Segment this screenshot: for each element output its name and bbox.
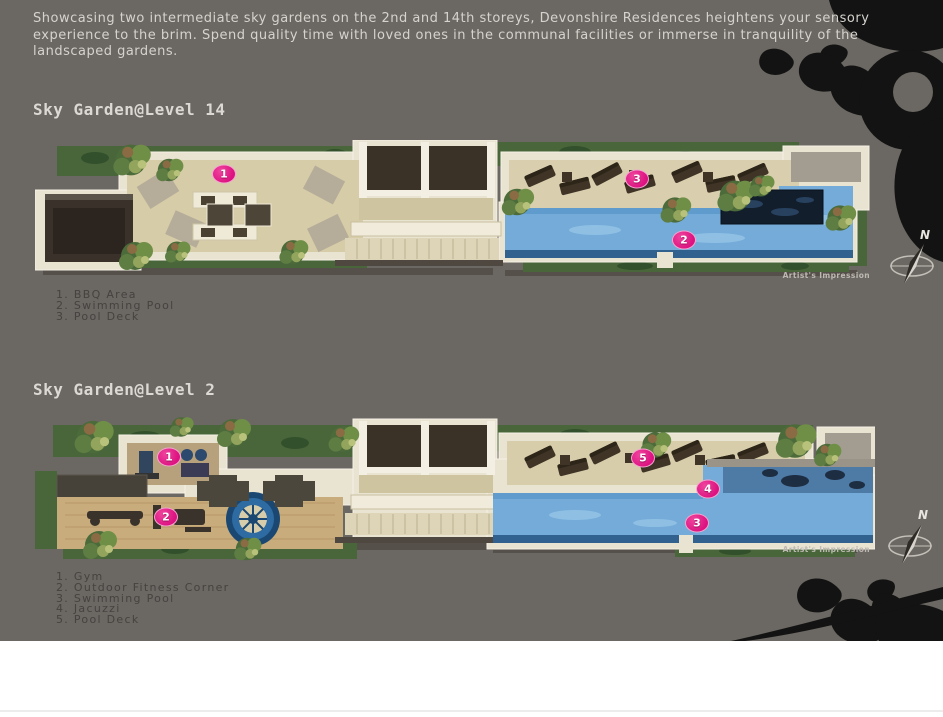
building-core — [335, 142, 503, 266]
roof-terrace — [791, 152, 861, 182]
artists-impression-level2: Artist's Impression — [760, 545, 870, 554]
level2-legend: 1. Gym 2. Outdoor Fitness Corner 3. Swim… — [56, 572, 230, 626]
compass-level14: N — [888, 228, 936, 290]
water-feature-left — [45, 194, 133, 262]
level2-floor-plan — [35, 415, 875, 561]
page-bottom-edge — [0, 710, 943, 712]
brochure-page: Showcasing two intermediate sky gardens … — [0, 0, 943, 717]
jacuzzi — [707, 459, 875, 493]
marker-level2-4: 4 — [696, 480, 720, 499]
legend-item: 3. Pool Deck — [56, 312, 175, 323]
marker-level14-3: 3 — [625, 170, 649, 189]
compass-north-label: N — [918, 508, 928, 522]
compass-level2: N — [886, 508, 934, 570]
stairs — [345, 513, 499, 535]
marker-level2-5: 5 — [631, 449, 655, 468]
marker-level14-2: 2 — [672, 231, 696, 250]
intro-paragraph: Showcasing two intermediate sky gardens … — [33, 11, 913, 61]
marker-level2-1: 1 — [157, 448, 181, 467]
level2-title: Sky Garden@Level 2 — [33, 380, 215, 399]
gray-background: Showcasing two intermediate sky gardens … — [0, 0, 943, 641]
legend-item: 5. Pool Deck — [56, 615, 230, 626]
marker-level2-3: 3 — [685, 514, 709, 533]
compass-north-label: N — [920, 228, 930, 242]
marker-level14-1: 1 — [212, 165, 236, 184]
marker-level2-2: 2 — [154, 508, 178, 527]
page-footer-whitespace — [0, 641, 943, 717]
level14-legend: 1. BBQ Area 2. Swimming Pool 3. Pool Dec… — [56, 290, 175, 322]
artists-impression-level14: Artist's Impression — [760, 271, 870, 280]
shelter-roof — [57, 475, 147, 499]
level14-title: Sky Garden@Level 14 — [33, 100, 226, 119]
stairs — [345, 238, 499, 260]
level14-floor-plan — [35, 140, 870, 286]
building-core — [335, 421, 503, 543]
